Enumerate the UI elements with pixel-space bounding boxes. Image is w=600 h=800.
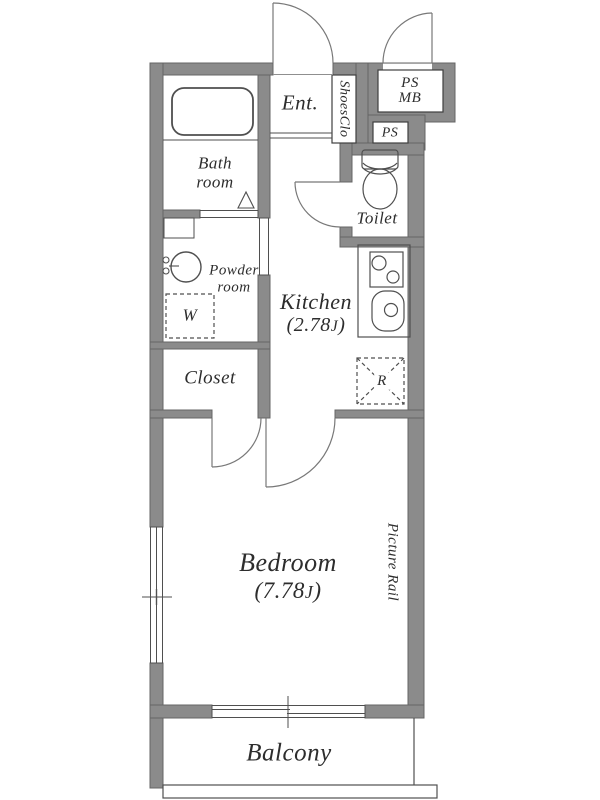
wall-bedroom-bottom-left	[150, 705, 212, 718]
kitchen-counter	[358, 245, 410, 337]
wall-bedroom-top-left	[150, 410, 212, 418]
label-kitchen: Kitchen (2.78J)	[280, 290, 352, 336]
entrance-door	[273, 3, 333, 63]
closet-door	[212, 418, 261, 467]
wall-toilet-left-a	[340, 143, 352, 182]
wall-top-left	[150, 63, 273, 75]
wall-left-upper	[150, 63, 163, 527]
wall-shoes-right	[356, 63, 368, 143]
bathroom-fold-door-mark	[238, 192, 254, 208]
label-refrigerator: R	[374, 373, 390, 390]
label-entrance: Ent.	[282, 91, 318, 114]
label-toilet: Toilet	[356, 210, 397, 229]
wall-toilet-top	[340, 143, 424, 155]
toilet-door	[295, 182, 340, 227]
left-window	[142, 527, 172, 663]
floorplan-linework	[0, 0, 600, 800]
label-shoes-closet: ShoesClo	[336, 81, 351, 138]
label-ps-mb: PS MB	[399, 76, 422, 106]
wall-bedroom-top-right	[335, 410, 424, 418]
bedroom-door	[266, 418, 335, 487]
label-picture-rail: Picture Rail	[384, 523, 401, 601]
wall-column-a	[258, 75, 270, 218]
label-bedroom: Bedroom (7.78J)	[239, 549, 337, 603]
floor-plan: Ent. ShoesClo PS MB PS Toilet Bath room …	[0, 0, 600, 800]
balcony-window	[212, 696, 365, 728]
toilet-fixture	[362, 150, 398, 209]
psmb-door	[383, 13, 432, 63]
powder-sink	[163, 252, 201, 282]
label-washer: W	[183, 307, 198, 326]
powder-fixture-box	[164, 218, 194, 238]
kitchen-sink	[372, 291, 404, 331]
wall-powder-closet	[150, 342, 270, 349]
wall-left-lower	[150, 663, 163, 788]
wall-bedroom-bottom-right	[365, 705, 424, 718]
label-powder-room: Powder room	[209, 263, 259, 296]
label-balcony: Balcony	[246, 739, 331, 767]
powder-room-door	[260, 218, 269, 275]
wall-right	[408, 150, 424, 718]
label-bathroom: Bath room	[196, 154, 233, 191]
label-closet: Closet	[184, 369, 236, 390]
bathtub	[163, 88, 258, 140]
wall-bath-bottom	[163, 210, 200, 218]
label-ps: PS	[382, 125, 399, 140]
bathroom-door	[200, 211, 258, 218]
